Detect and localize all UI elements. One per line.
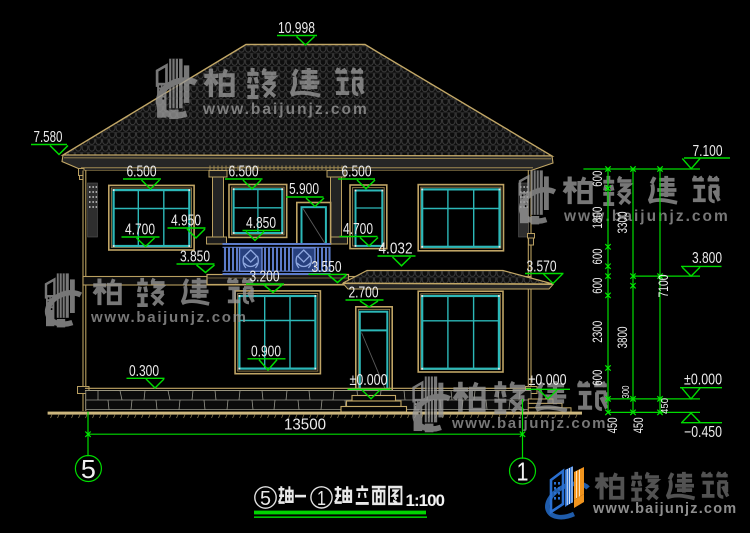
svg-text:4.032: 4.032 bbox=[379, 241, 413, 258]
svg-text:3300: 3300 bbox=[615, 212, 630, 234]
svg-text:1800: 1800 bbox=[590, 207, 605, 229]
svg-text:450: 450 bbox=[605, 417, 620, 433]
svg-text:2.700: 2.700 bbox=[349, 285, 379, 302]
svg-text:0.900: 0.900 bbox=[251, 343, 281, 360]
svg-text:600: 600 bbox=[590, 278, 605, 294]
svg-text:13500: 13500 bbox=[284, 417, 326, 434]
svg-text:1:100: 1:100 bbox=[406, 491, 445, 510]
svg-text:3.850: 3.850 bbox=[180, 249, 210, 266]
svg-text:www.baijunjz.com: www.baijunjz.com bbox=[451, 415, 607, 432]
svg-text:6.500: 6.500 bbox=[127, 164, 157, 181]
svg-text:600: 600 bbox=[590, 249, 605, 265]
svg-text:0.300: 0.300 bbox=[129, 363, 159, 380]
svg-text:±0.000: ±0.000 bbox=[529, 372, 567, 389]
svg-text:±0.000: ±0.000 bbox=[684, 372, 722, 389]
svg-text:5.900: 5.900 bbox=[289, 181, 319, 198]
svg-text:4.700: 4.700 bbox=[125, 222, 155, 239]
svg-text:7.580: 7.580 bbox=[34, 129, 63, 146]
svg-text:6.500: 6.500 bbox=[229, 164, 259, 181]
svg-text:−0.450: −0.450 bbox=[684, 424, 722, 441]
svg-text:±0.000: ±0.000 bbox=[350, 372, 388, 389]
svg-text:300: 300 bbox=[621, 385, 632, 398]
svg-text:450: 450 bbox=[631, 417, 646, 433]
svg-text:www.baijunjz.com: www.baijunjz.com bbox=[563, 208, 730, 225]
svg-text:7100: 7100 bbox=[656, 275, 671, 298]
svg-text:450: 450 bbox=[659, 398, 671, 414]
svg-text:www.baijunjz.com: www.baijunjz.com bbox=[592, 501, 737, 517]
svg-text:5: 5 bbox=[260, 488, 271, 510]
svg-text:www.baijunjz.com: www.baijunjz.com bbox=[90, 309, 248, 326]
svg-text:3.800: 3.800 bbox=[692, 250, 722, 267]
svg-text:3800: 3800 bbox=[615, 327, 630, 349]
svg-text:10.998: 10.998 bbox=[278, 20, 315, 37]
svg-text:1: 1 bbox=[517, 457, 529, 487]
svg-text:2300: 2300 bbox=[590, 321, 605, 343]
svg-text:3.550: 3.550 bbox=[312, 259, 342, 276]
svg-text:4.700: 4.700 bbox=[343, 221, 373, 238]
svg-text:www.baijunjz.com: www.baijunjz.com bbox=[202, 101, 369, 118]
svg-text:4.950: 4.950 bbox=[171, 213, 201, 230]
svg-text:1: 1 bbox=[317, 488, 326, 510]
svg-text:4.850: 4.850 bbox=[246, 215, 276, 232]
svg-text:5: 5 bbox=[81, 454, 96, 484]
svg-text:6.500: 6.500 bbox=[342, 164, 372, 181]
svg-text:600: 600 bbox=[590, 171, 605, 187]
svg-text:600: 600 bbox=[590, 370, 605, 386]
svg-text:3.200: 3.200 bbox=[250, 269, 280, 286]
